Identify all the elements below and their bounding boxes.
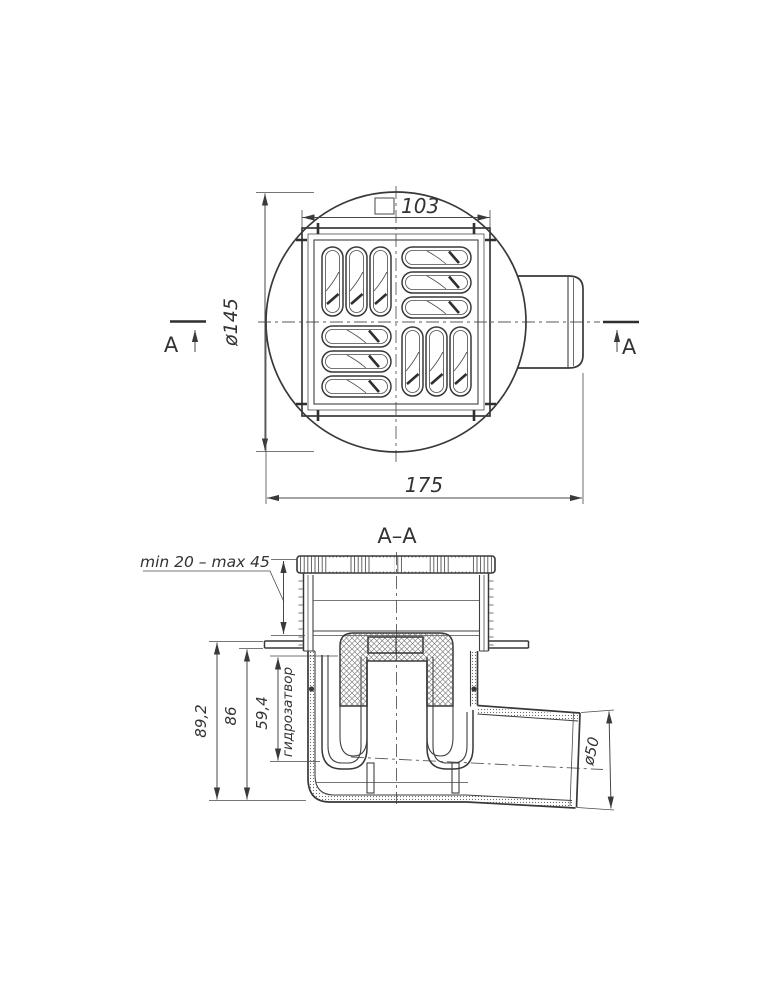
section-letter-right: A	[622, 335, 637, 359]
leg-right	[452, 763, 459, 793]
grate-slot	[370, 247, 391, 316]
dim-mounting-range: min 20 – max 45	[140, 553, 305, 636]
water-seal-name-label: гидрозатвор	[280, 667, 296, 757]
grate-size-label: 103	[401, 194, 439, 218]
mounting-range-label: min 20 – max 45	[140, 553, 270, 571]
grate-slot	[322, 376, 391, 397]
grate-slot	[322, 351, 391, 372]
o-ring-left	[309, 686, 314, 691]
section-letter-left: A	[164, 333, 179, 357]
grate-slot	[322, 247, 343, 316]
grate-slot	[402, 297, 471, 318]
dim-outlet-diameter: ø50	[577, 710, 614, 810]
grate-slot	[346, 247, 367, 316]
grate-slot	[402, 272, 471, 293]
section-marker-right: A	[603, 322, 639, 359]
section-title: A–A	[377, 524, 417, 548]
dim-water-seal: 59,4 гидрозатвор	[253, 656, 338, 762]
drawing-sheet: ø145 103 175 A A A–A	[0, 0, 771, 1000]
top-view: ø145 103 175 A A	[164, 186, 639, 504]
body-height-label: 86	[222, 706, 240, 725]
grate-slot	[402, 327, 423, 396]
square-dimension-symbol	[375, 198, 394, 214]
grate-slot	[402, 247, 471, 268]
outlet-diameter-label: ø50	[579, 735, 603, 767]
grate-slot	[426, 327, 447, 396]
leg-left	[367, 763, 374, 793]
grate-slot	[450, 327, 471, 396]
outlet-pipe-section	[478, 706, 581, 808]
flange-diameter-label: ø145	[220, 298, 242, 347]
technical-drawing: ø145 103 175 A A A–A	[0, 0, 771, 1000]
water-seal-height-label: 59,4	[253, 696, 271, 729]
grate-slot	[322, 326, 391, 347]
grate-strip	[297, 556, 495, 573]
section-marker-left: A	[164, 322, 206, 358]
overall-height-label: 89,2	[192, 704, 210, 737]
section-view: A–A	[140, 524, 614, 810]
o-ring-right	[471, 686, 476, 691]
overall-width-label: 175	[405, 473, 443, 497]
